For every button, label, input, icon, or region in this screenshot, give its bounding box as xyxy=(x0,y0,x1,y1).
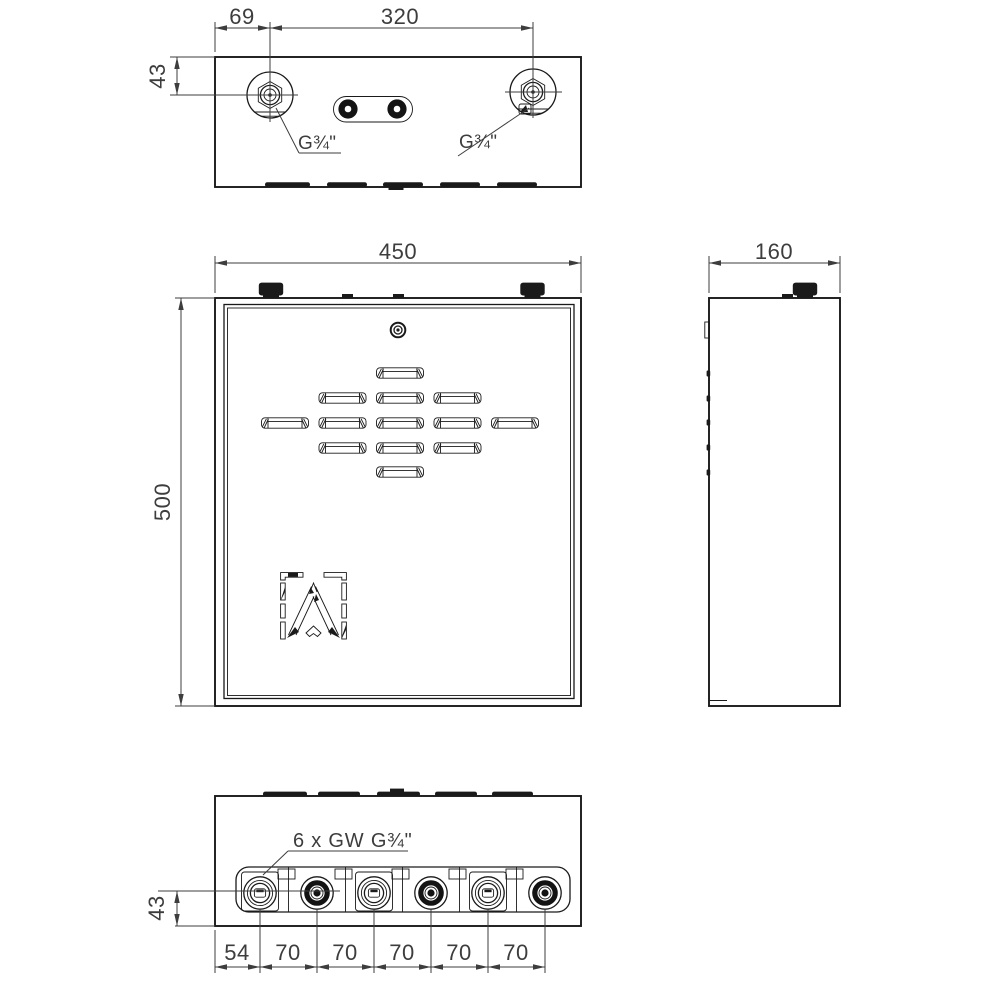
dimension-69-label: 69 xyxy=(229,4,254,29)
dimension-500-label: 500 xyxy=(150,483,175,521)
port-label-right: G¾" xyxy=(459,132,497,153)
top-tab-left xyxy=(342,294,353,298)
pipe-connection-4 xyxy=(415,877,447,909)
dimension-70-label-5: 70 xyxy=(503,940,528,965)
dimension-43-top-label: 43 xyxy=(145,63,170,88)
dimension-43-bottom-label: 43 xyxy=(144,895,169,920)
dimension-70-label-1: 70 xyxy=(275,940,300,965)
top-tab-right xyxy=(393,294,404,298)
side-top-tab xyxy=(782,294,793,298)
dimension-70-label-2: 70 xyxy=(332,940,357,965)
dimension-320-label: 320 xyxy=(381,4,419,29)
pipe-connection-6 xyxy=(529,877,561,909)
port-label-left: G¾" xyxy=(298,133,336,154)
dimension-54-label: 54 xyxy=(224,940,249,965)
technical-drawing-page: 69 320 43 G¾" G¾" xyxy=(0,0,1000,1000)
connection-callout-label: 6 x GW G¾" xyxy=(293,830,413,852)
manifold-cabinet-drawing: 69 320 43 G¾" G¾" xyxy=(0,0,1000,1000)
dimension-70-label-3: 70 xyxy=(389,940,414,965)
dimension-70-label-4: 70 xyxy=(446,940,471,965)
dimension-160-label: 160 xyxy=(755,239,793,264)
dimension-450-label: 450 xyxy=(379,239,417,264)
pipe-connection-2 xyxy=(301,877,333,909)
